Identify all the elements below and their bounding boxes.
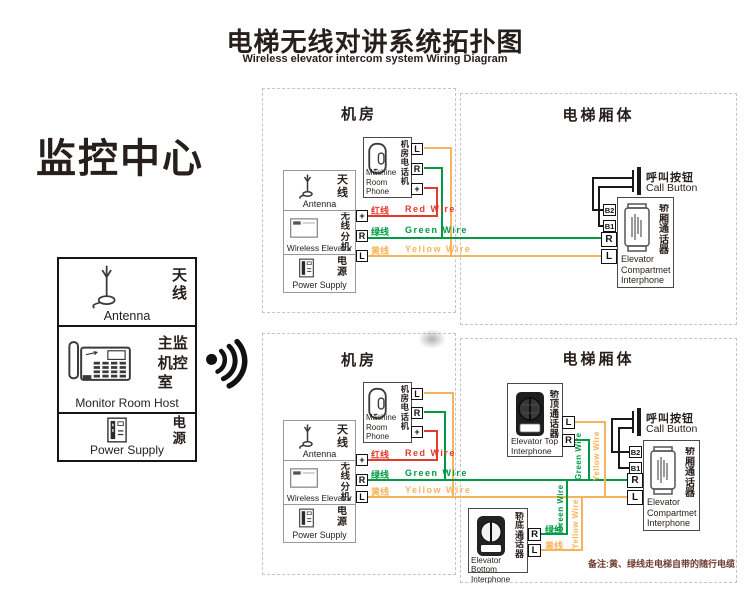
call-button-en: Call Button [646,423,697,435]
station-wireless-cell: 无线分机 Wireless Elevator [284,461,355,505]
monitor-power-cn: 电源 [173,415,187,446]
terminal-r: R [528,528,541,541]
compartment-en2: Compartmet [621,265,671,276]
yellow-wire-label-en: Yellow Wire [405,244,471,254]
machine-room-phone-en2: Room Phone [366,178,411,196]
power-supply-icon [299,508,314,528]
compartment-en3: Interphone [647,518,697,529]
compartment-interphone-en: Elevator Compartmet Interphone [621,254,671,286]
section-machine-room-top: 机房 [262,103,456,124]
monitor-antenna-cell: 天线 Antenna [59,259,195,327]
compartment-interphone-cn: 轿厢通话器 [659,204,669,257]
station-antenna-en: Antenna [284,449,355,459]
elevator-bottom-interphone-en: Elevator Bottom Interphone [471,556,527,584]
monitor-antenna-cn: 天线 [172,267,187,303]
call-button-wire [611,418,632,420]
station-wireless-en: Wireless Elevator [284,493,355,503]
green-wire-vertical-label: Green Wire [574,442,583,480]
station-antenna-cell: 天线 Antenna [284,421,355,461]
monitor-host-en: Monitor Room Host [59,396,195,410]
green-wire [588,439,590,481]
call-button-wire [618,427,620,469]
terminal-l: L [356,491,368,503]
note-text: 备注:黄、绿线走电梯自带的随行电缆 [588,557,735,570]
desk-phone-icon [67,335,133,387]
machine-room-phone-en1: Machine [366,168,411,177]
terminal-plus: + [356,210,368,222]
green-wire [368,237,601,239]
green-wire-label-cn: 绿线 [371,225,389,238]
yellow-wire [368,255,601,257]
green-wire [566,481,568,535]
compartment-interphone-cn: 轿厢通话器 [685,447,695,500]
monitor-host-cn: 主监机控室 [158,334,190,393]
machine-room-phone-en1: Machine [366,413,411,422]
bottom-l-wire-label: 黄线 [545,539,563,552]
call-button-actuator [637,408,641,436]
station-antenna-cell: 天线 Antenna [284,171,355,211]
green-wire-label-cn: 绿线 [371,468,389,481]
red-wire-label-cn: 红线 [371,204,389,217]
section-elevator-body-top: 电梯厢体 [460,104,737,125]
station-antenna-en: Antenna [284,199,355,209]
terminal-plus: + [411,183,423,195]
compartment-interphone-box: 轿厢通话器 Elevator Compartmet Interphone [617,197,674,288]
red-wire-label-en: Red Wire [405,204,456,214]
terminal-r: R [356,230,368,242]
terminal-l: L [411,143,423,155]
antenna-icon [296,173,316,199]
antenna-icon [296,423,316,449]
elevator-top-interphone-cn: 轿顶通话器 [550,390,560,440]
green-wire-label-en: Green Wire [405,225,468,235]
terminal-plus: + [411,426,423,438]
terminal-r: R [562,434,575,447]
compartment-en1: Elevator [621,254,671,265]
power-supply-icon [107,417,127,443]
terminal-r: R [411,163,423,175]
bottom-interphone-en2: Interphone [471,575,527,584]
terminal-r: R [601,232,617,247]
terminal-l: L [601,249,617,264]
wireless-device-icon [289,468,319,488]
yellow-wire [604,421,606,498]
green-wire [424,411,446,413]
terminal-r: R [627,473,643,488]
bottom-interphone-en1: Elevator Bottom [471,556,527,575]
compartment-interphone-box: 轿厢通话器 Elevator Compartmet Interphone [643,440,700,531]
monitor-center-title: 监控中心 [36,126,204,184]
section-elevator-body-bottom: 电梯厢体 [460,348,737,369]
terminal-l: L [528,544,541,557]
wireless-signal-icon [202,338,250,390]
monitor-antenna-en: Antenna [59,309,195,323]
station-power-en: Power Supply [284,280,355,290]
call-button-wire [618,427,632,429]
station-box: 天线 Antenna 无线分机 Wireless Elevator 电源 Pow… [283,170,356,293]
wiring-diagram: 电梯无线对讲系统拓扑图 Wireless elevator intercom s… [0,0,750,589]
smudge [418,329,446,349]
machine-room-phone-en: Machine Room Phone [366,168,411,196]
machine-room-phone-en2: Room Phone [366,423,411,441]
wireless-device-icon [289,218,319,238]
monitor-host-cell: 主监机控室 Monitor Room Host [59,327,195,414]
terminal-r: R [411,407,423,419]
elevator-top-interphone-en: Elevator Top Interphone [511,437,558,457]
yellow-wire [424,147,452,149]
station-box: 天线 Antenna 无线分机 Wireless Elevator 电源 Pow… [283,420,356,543]
call-button-contact [632,411,634,433]
compartment-en3: Interphone [621,275,671,286]
green-wire-label-en: Green Wire [405,468,468,478]
terminal-l: L [627,490,643,505]
bottom-r-wire-label: 绿线 [545,523,563,536]
station-power-cell: 电源 Power Supply [284,255,355,291]
station-power-cell: 电源 Power Supply [284,505,355,541]
speaker-icon [623,203,651,253]
yellow-wire-label-cn: 黄线 [371,244,389,257]
terminal-l: L [411,388,423,400]
call-button-wire [598,186,600,227]
station-power-cn: 电源 [337,506,347,528]
station-wireless-en: Wireless Elevator [284,243,355,253]
elevator-bottom-interphone-cn: 轿底通话器 [515,512,524,559]
machine-room-phone-en: Machine Room Phone [366,413,411,441]
call-button-wire [611,451,629,453]
yellow-wire [581,498,583,551]
yellow-wire [424,392,454,394]
compartment-interphone-en: Elevator Compartmet Interphone [647,497,697,529]
speaker-icon [476,515,506,557]
call-button-wire [611,418,613,453]
yellow-wire-vertical-label: Yellow Wire [592,437,601,481]
terminal-l: L [562,416,575,429]
compartment-en1: Elevator [647,497,697,508]
station-power-cn: 电源 [337,256,347,278]
machine-room-phone-box: 机房电话机 Machine Room Phone [363,382,412,443]
station-antenna-cn: 天线 [337,174,348,199]
machine-room-phone-box: 机房电话机 Machine Room Phone [363,137,412,198]
yellow-wire [452,392,454,498]
compartment-en2: Compartmet [647,508,697,519]
terminal-l: L [356,250,368,262]
monitor-power-cell: 电源 Power Supply [59,414,195,458]
power-supply-icon [299,258,314,278]
yellow-wire [575,421,606,423]
call-button-en: Call Button [646,182,697,194]
yellow-wire [450,147,452,257]
terminal-b1: B1 [603,220,616,232]
page-subtitle: Wireless elevator intercom system Wiring… [215,53,535,65]
top-interphone-en2: Interphone [511,447,558,457]
yellow-wire [368,496,627,498]
call-button-contact [632,170,634,192]
speaker-icon [515,391,545,437]
station-wireless-cell: 无线分机 Wireless Elevator [284,211,355,255]
monitor-power-en: Power Supply [59,443,195,457]
elevator-bottom-interphone-box: 轿底通话器 Elevator Bottom Interphone [468,508,528,573]
call-button-wire [592,177,632,179]
red-wire-label-en: Red Wire [405,448,456,458]
terminal-r: R [356,474,368,486]
station-antenna-cn: 天线 [337,424,348,449]
yellow-wire-label-en: Yellow Wire [405,485,471,495]
yellow-wire-label-cn: 黄线 [371,485,389,498]
elevator-top-interphone-box: 轿顶通话器 Elevator Top Interphone [507,383,563,457]
terminal-b2: B2 [629,446,642,458]
monitor-center-box: 天线 Antenna 主监机控室 Monitor Room Hos [57,257,197,462]
call-button-wire [592,177,594,211]
terminal-plus: + [356,454,368,466]
terminal-b2: B2 [603,204,616,216]
station-power-en: Power Supply [284,530,355,540]
call-button-wire [598,186,632,188]
red-wire-label-cn: 红线 [371,448,389,461]
call-button-actuator [637,167,641,195]
antenna-icon [85,263,123,309]
speaker-icon [649,446,677,496]
yellow-wire-vertical-label: Yellow Wire [571,497,580,549]
section-machine-room-bottom: 机房 [262,349,456,370]
